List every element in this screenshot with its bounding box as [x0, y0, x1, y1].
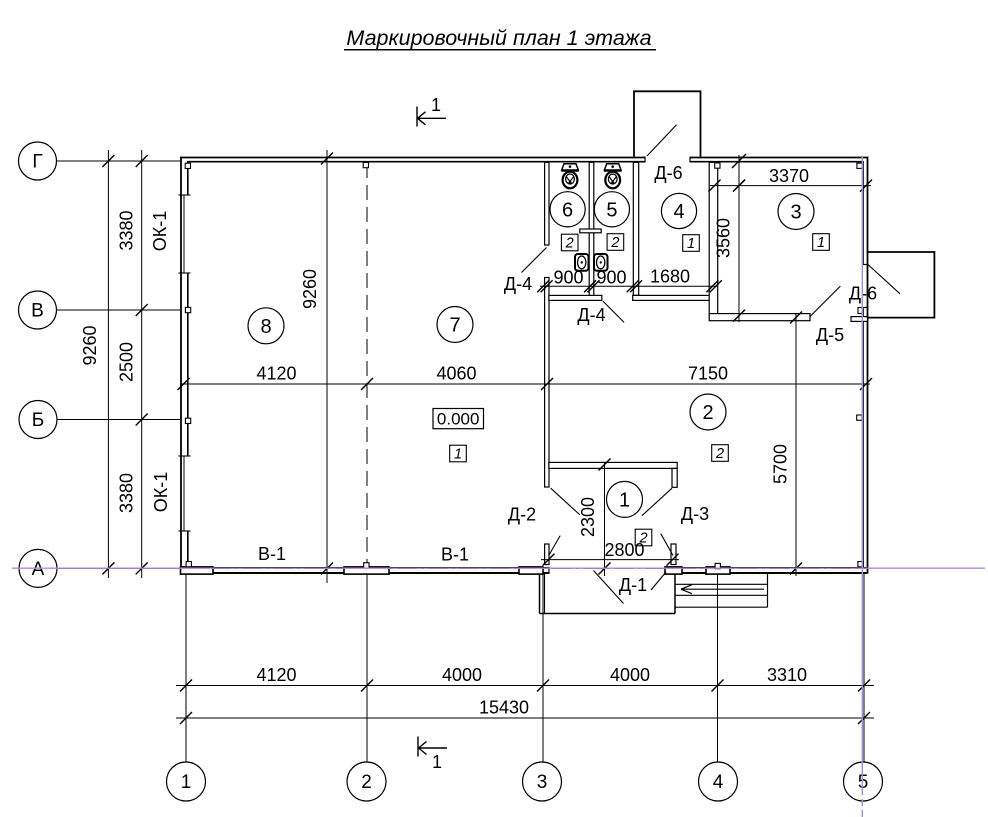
svg-text:Д-1: Д-1 [619, 575, 647, 595]
svg-text:2: 2 [610, 235, 619, 251]
svg-text:1: 1 [432, 752, 442, 772]
svg-text:7150: 7150 [688, 364, 728, 384]
svg-text:Г: Г [32, 152, 42, 173]
svg-text:Д-5: Д-5 [816, 325, 844, 345]
svg-text:В-1: В-1 [441, 545, 469, 565]
svg-text:2: 2 [715, 446, 724, 462]
svg-text:Д-4: Д-4 [504, 274, 532, 294]
svg-text:8: 8 [260, 316, 271, 338]
svg-text:Маркировочный план 1 этажа: Маркировочный план 1 этажа [346, 26, 651, 50]
svg-text:2300: 2300 [578, 497, 598, 537]
svg-text:900: 900 [553, 268, 583, 288]
svg-text:1: 1 [181, 772, 192, 793]
svg-text:А: А [32, 559, 45, 580]
svg-text:Д-3: Д-3 [681, 504, 709, 524]
svg-text:2: 2 [565, 235, 574, 251]
svg-text:4120: 4120 [256, 665, 296, 685]
svg-text:2800: 2800 [604, 540, 644, 560]
svg-text:3: 3 [790, 202, 801, 224]
svg-text:1: 1 [619, 489, 630, 511]
svg-text:Б: Б [32, 410, 44, 431]
svg-text:Д-2: Д-2 [508, 505, 536, 525]
svg-text:4060: 4060 [436, 364, 476, 384]
svg-text:2: 2 [702, 402, 713, 424]
svg-text:3370: 3370 [769, 166, 809, 186]
svg-text:ОК-1: ОК-1 [150, 211, 170, 252]
svg-text:4: 4 [673, 201, 684, 223]
svg-text:В-1: В-1 [258, 544, 286, 564]
svg-text:3380: 3380 [117, 210, 137, 250]
svg-text:2: 2 [361, 772, 372, 793]
svg-text:3: 3 [537, 772, 548, 793]
svg-text:3310: 3310 [767, 665, 807, 685]
svg-text:1: 1 [687, 236, 695, 252]
svg-text:1: 1 [431, 95, 441, 115]
svg-text:3560: 3560 [714, 218, 734, 258]
svg-text:0.000: 0.000 [437, 410, 480, 429]
svg-text:1680: 1680 [650, 267, 690, 287]
svg-text:5: 5 [606, 199, 617, 221]
svg-text:900: 900 [596, 268, 626, 288]
svg-text:15430: 15430 [479, 698, 529, 718]
svg-text:Д-4: Д-4 [577, 305, 605, 325]
svg-text:ОК-1: ОК-1 [151, 472, 171, 513]
svg-text:1: 1 [817, 235, 825, 251]
svg-text:7: 7 [449, 315, 460, 337]
svg-text:2500: 2500 [117, 342, 137, 382]
svg-text:3380: 3380 [117, 473, 137, 513]
svg-text:1: 1 [454, 446, 462, 462]
svg-text:В: В [31, 301, 44, 322]
svg-text:4: 4 [713, 772, 724, 793]
svg-text:9260: 9260 [80, 325, 100, 365]
svg-text:Д-6: Д-6 [654, 163, 682, 183]
svg-text:4120: 4120 [256, 364, 296, 384]
svg-text:9260: 9260 [300, 269, 320, 309]
svg-text:4000: 4000 [610, 665, 650, 685]
svg-text:6: 6 [562, 199, 573, 221]
svg-text:5700: 5700 [771, 444, 791, 484]
svg-text:4000: 4000 [442, 665, 482, 685]
